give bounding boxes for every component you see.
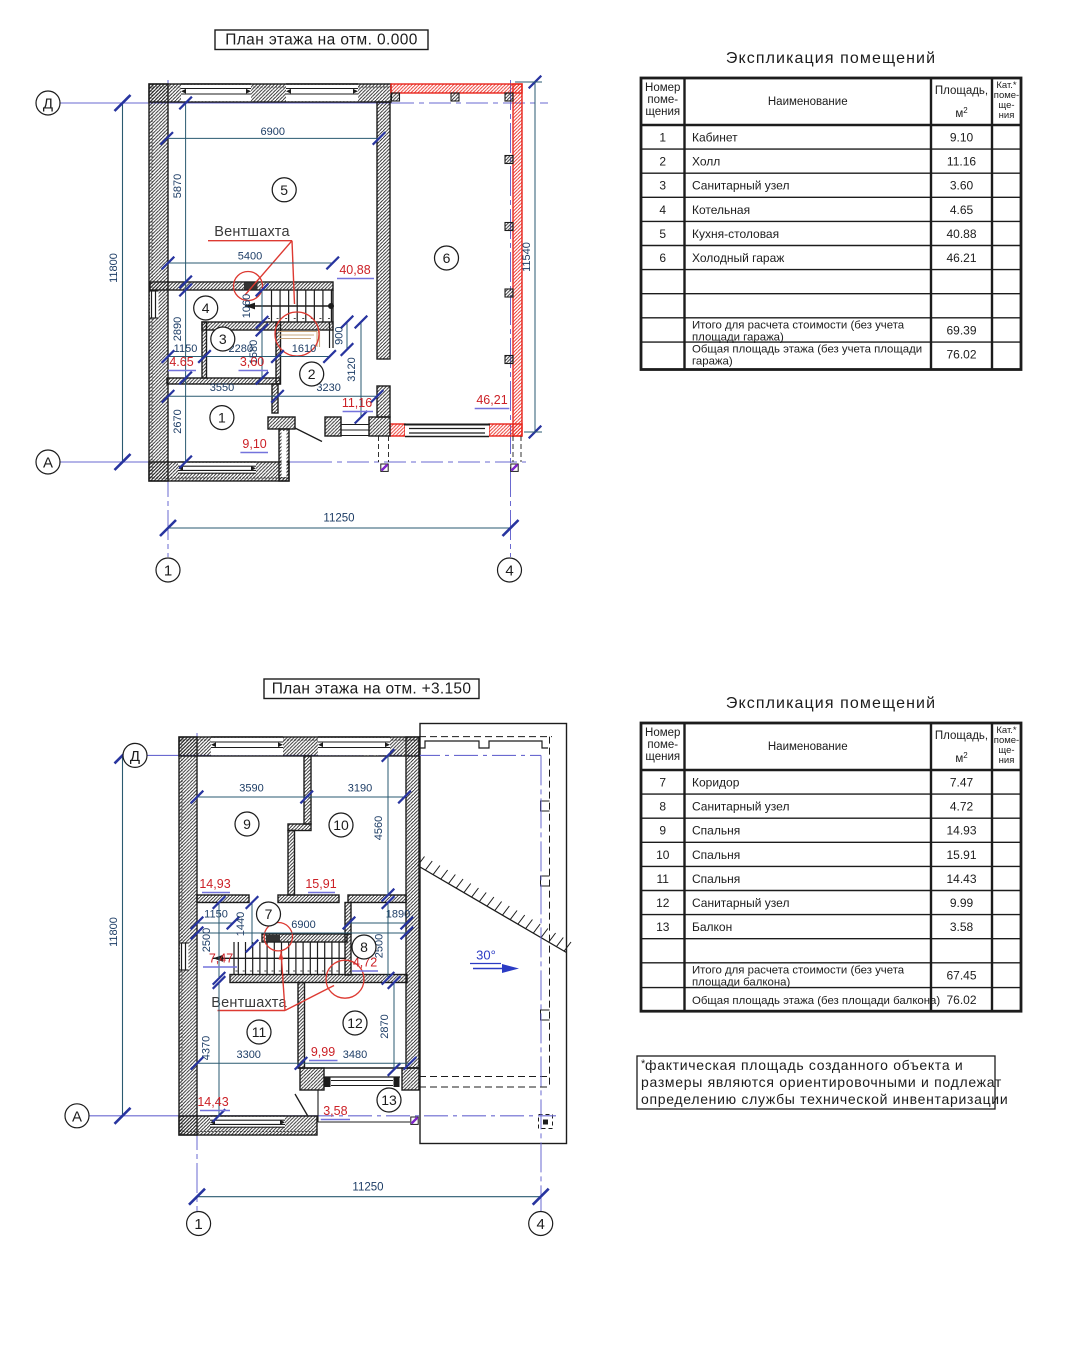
- svg-text:7: 7: [265, 906, 273, 922]
- svg-text:определению службы технической: определению службы технической инвентари…: [641, 1091, 1008, 1107]
- svg-text:46,21: 46,21: [476, 393, 507, 407]
- svg-text:11.16: 11.16: [947, 155, 976, 169]
- svg-text:ния: ния: [999, 110, 1015, 121]
- svg-text:2500: 2500: [201, 928, 213, 952]
- svg-text:1150: 1150: [204, 909, 228, 921]
- svg-text:Санитарный узел: Санитарный узел: [692, 179, 789, 193]
- svg-text:3190: 3190: [348, 783, 372, 795]
- svg-text:Экспликация помещений: Экспликация помещений: [726, 695, 936, 712]
- svg-text:Коридор: Коридор: [692, 776, 740, 790]
- svg-text:1: 1: [659, 131, 666, 145]
- svg-text:Д: Д: [43, 96, 53, 113]
- svg-text:3: 3: [659, 179, 666, 193]
- svg-text:А: А: [72, 1108, 82, 1125]
- svg-text:9: 9: [243, 816, 251, 832]
- svg-text:Вентшахта: Вентшахта: [214, 224, 290, 240]
- svg-text:Санитарный узел: Санитарный узел: [692, 896, 789, 910]
- svg-text:размеры являются ориентировочн: размеры являются ориентировочными и подл…: [641, 1074, 1002, 1090]
- svg-text:2890: 2890: [172, 317, 184, 341]
- svg-text:площади балкона): площади балкона): [692, 976, 790, 988]
- svg-text:15,91: 15,91: [305, 877, 336, 891]
- svg-text:14,93: 14,93: [199, 877, 230, 891]
- svg-text:4.65: 4.65: [950, 203, 974, 217]
- svg-text:76.02: 76.02: [946, 993, 976, 1007]
- svg-text:9.10: 9.10: [950, 131, 974, 145]
- svg-text:3230: 3230: [316, 382, 340, 394]
- svg-text:46.21: 46.21: [946, 251, 976, 265]
- svg-text:2670: 2670: [172, 409, 184, 433]
- svg-text:Номер: Номер: [645, 82, 680, 94]
- svg-text:11250: 11250: [352, 1182, 383, 1194]
- svg-text:1: 1: [164, 563, 172, 580]
- svg-text:9.99: 9.99: [950, 896, 974, 910]
- svg-text:4.72: 4.72: [950, 800, 974, 814]
- svg-text:ния: ния: [999, 755, 1015, 766]
- svg-text:поме-: поме-: [647, 94, 678, 106]
- svg-text:7,47: 7,47: [209, 952, 233, 966]
- svg-text:5: 5: [280, 182, 288, 198]
- svg-text:4.65: 4.65: [169, 355, 193, 369]
- svg-text:2: 2: [659, 155, 666, 169]
- svg-text:11800: 11800: [108, 917, 120, 947]
- svg-text:8: 8: [360, 939, 368, 955]
- svg-text:3550: 3550: [210, 382, 234, 394]
- svg-text:11800: 11800: [108, 253, 120, 283]
- svg-text:гаража): гаража): [692, 356, 733, 368]
- svg-text:11,16: 11,16: [342, 396, 372, 410]
- svg-text:2: 2: [308, 366, 316, 382]
- svg-text:3,60: 3,60: [240, 355, 264, 369]
- svg-text:Наименование: Наименование: [768, 741, 848, 753]
- svg-text:11540: 11540: [521, 242, 533, 272]
- svg-text:4560: 4560: [373, 816, 385, 840]
- svg-text:3: 3: [219, 331, 227, 347]
- svg-text:14.93: 14.93: [946, 824, 976, 838]
- svg-text:1060: 1060: [241, 294, 253, 318]
- svg-text:40,88: 40,88: [339, 263, 370, 277]
- svg-text:4: 4: [505, 563, 513, 580]
- svg-text:40.88: 40.88: [946, 227, 976, 241]
- svg-text:Экспликация помещений: Экспликация помещений: [726, 50, 936, 67]
- svg-text:Холодный гараж: Холодный гараж: [692, 251, 784, 265]
- svg-text:12: 12: [656, 896, 670, 910]
- svg-text:Площадь,: Площадь,: [935, 85, 988, 97]
- svg-text:3300: 3300: [236, 1049, 260, 1061]
- svg-text:12: 12: [347, 1015, 363, 1031]
- svg-text:5870: 5870: [172, 174, 184, 198]
- svg-text:9: 9: [659, 824, 666, 838]
- svg-text:План этажа на отм. 0.000: План этажа на отм. 0.000: [225, 32, 418, 49]
- svg-text:*фактическая площадь созданног: *фактическая площадь созданного объекта …: [641, 1057, 963, 1073]
- svg-text:План этажа на отм. +3.150: План этажа на отм. +3.150: [272, 681, 472, 698]
- svg-text:11250: 11250: [323, 513, 354, 525]
- svg-text:9,10: 9,10: [242, 437, 266, 451]
- svg-text:30°: 30°: [476, 948, 496, 963]
- svg-text:Вентшахта: Вентшахта: [211, 995, 287, 1011]
- svg-text:2870: 2870: [379, 1014, 391, 1038]
- svg-text:76.02: 76.02: [946, 348, 976, 362]
- svg-text:Котельная: Котельная: [692, 203, 750, 217]
- svg-text:поме-: поме-: [647, 739, 678, 751]
- svg-text:7: 7: [659, 776, 666, 790]
- svg-text:1610: 1610: [292, 343, 316, 355]
- svg-text:Спальня: Спальня: [692, 848, 740, 862]
- svg-text:1: 1: [194, 1216, 202, 1233]
- svg-text:щения: щения: [645, 106, 680, 118]
- svg-text:6900: 6900: [291, 919, 315, 931]
- svg-text:14,43: 14,43: [197, 1095, 228, 1109]
- svg-text:13: 13: [656, 920, 670, 934]
- svg-text:Кабинет: Кабинет: [692, 131, 738, 145]
- svg-text:5: 5: [659, 227, 666, 241]
- svg-text:3590: 3590: [239, 783, 263, 795]
- svg-text:4: 4: [659, 203, 666, 217]
- svg-text:15.91: 15.91: [946, 848, 976, 862]
- svg-text:13: 13: [381, 1092, 397, 1108]
- svg-text:900: 900: [334, 327, 346, 345]
- svg-text:5400: 5400: [238, 251, 262, 263]
- svg-text:щения: щения: [645, 751, 680, 763]
- svg-text:6900: 6900: [261, 126, 285, 138]
- svg-text:Номер: Номер: [645, 727, 680, 739]
- svg-text:Общая площадь этажа (без учета: Общая площадь этажа (без учета площади: [692, 344, 922, 356]
- svg-text:6: 6: [443, 250, 451, 266]
- svg-text:10: 10: [656, 848, 670, 862]
- svg-text:Санитарный узел: Санитарный узел: [692, 800, 789, 814]
- svg-text:10: 10: [333, 817, 349, 833]
- svg-text:7.47: 7.47: [950, 776, 974, 790]
- svg-text:3120: 3120: [346, 357, 358, 381]
- svg-text:69.39: 69.39: [946, 323, 976, 337]
- svg-text:4: 4: [537, 1216, 545, 1233]
- svg-text:Д: Д: [130, 748, 140, 765]
- svg-text:Общая площадь этажа (без площа: Общая площадь этажа (без площади балкона…: [692, 995, 940, 1007]
- svg-text:3,58: 3,58: [323, 1104, 347, 1118]
- svg-text:Спальня: Спальня: [692, 824, 740, 838]
- svg-text:14.43: 14.43: [946, 872, 976, 886]
- svg-text:А: А: [43, 455, 53, 472]
- svg-text:1: 1: [218, 410, 226, 426]
- svg-text:4: 4: [202, 300, 210, 316]
- svg-text:Спальня: Спальня: [692, 872, 740, 886]
- svg-text:3.58: 3.58: [950, 920, 974, 934]
- svg-text:8: 8: [659, 800, 666, 814]
- svg-text:Площадь,: Площадь,: [935, 730, 988, 742]
- svg-text:Итого для расчета стоимости (б: Итого для расчета стоимости (без учета: [692, 964, 905, 976]
- svg-text:1440: 1440: [235, 912, 247, 936]
- svg-text:3.60: 3.60: [950, 179, 974, 193]
- svg-text:11: 11: [252, 1024, 267, 1040]
- svg-text:Наименование: Наименование: [768, 96, 848, 108]
- svg-text:67.45: 67.45: [946, 968, 976, 982]
- svg-text:Балкон: Балкон: [692, 920, 732, 934]
- svg-text:1890: 1890: [386, 909, 410, 921]
- svg-text:Итого для расчета стоимости (б: Итого для расчета стоимости (без учета: [692, 319, 905, 331]
- svg-text:3480: 3480: [343, 1049, 367, 1061]
- svg-text:9,99: 9,99: [311, 1045, 335, 1059]
- svg-text:Кухня-столовая: Кухня-столовая: [692, 227, 779, 241]
- svg-text:11: 11: [657, 872, 670, 886]
- svg-text:6: 6: [659, 251, 666, 265]
- svg-text:Холл: Холл: [692, 155, 720, 169]
